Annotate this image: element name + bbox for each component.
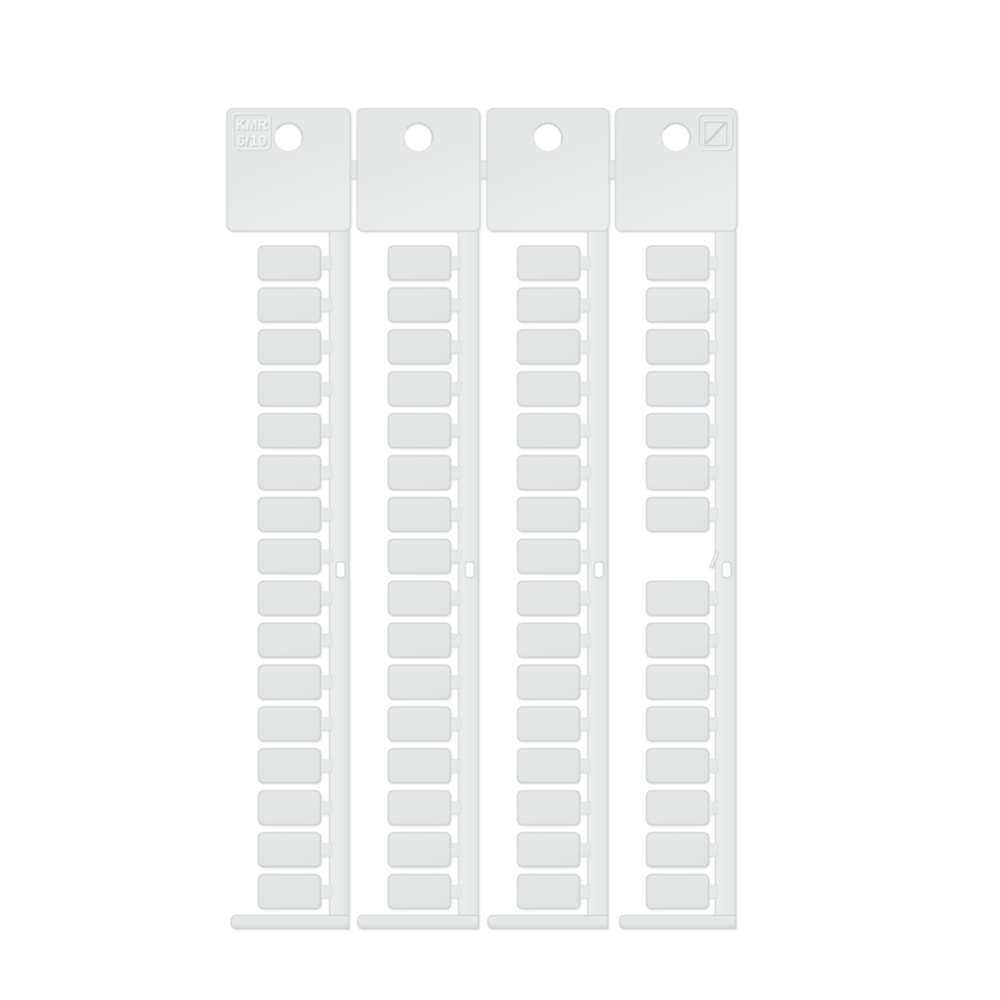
svg-text:KMR: KMR [236, 117, 268, 134]
svg-text:6/10: 6/10 [237, 133, 267, 150]
